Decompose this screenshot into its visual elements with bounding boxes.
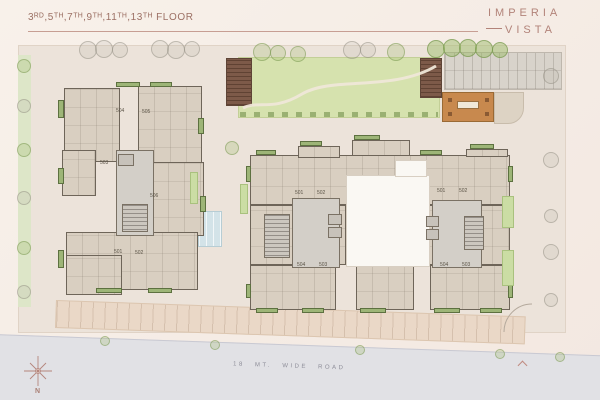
- tree-icon: [17, 241, 31, 255]
- tree-icon: [544, 293, 558, 307]
- tree-icon: [17, 59, 31, 73]
- balcony: [256, 308, 278, 313]
- tower-a-lift: [426, 216, 439, 227]
- tower-b-stairs: [264, 214, 290, 258]
- tree-icon: [225, 141, 239, 155]
- tree-icon: [543, 244, 559, 260]
- pergola-right: [420, 58, 442, 98]
- unit-number: 506: [150, 193, 158, 199]
- balcony: [58, 100, 64, 118]
- tree-icon: [17, 99, 31, 113]
- tree-icon: [492, 42, 508, 58]
- balcony: [480, 308, 502, 313]
- north-bump: [466, 149, 508, 157]
- hedge: [502, 250, 514, 286]
- tower-b-lift: [328, 227, 342, 238]
- deck-seat: [448, 112, 452, 116]
- balcony: [508, 166, 513, 182]
- mid-south-wing: [356, 265, 414, 310]
- unit-number: 504: [440, 262, 448, 268]
- amenity-deck: [442, 92, 494, 122]
- compass-north-label: N: [35, 388, 40, 395]
- balcony: [150, 82, 172, 87]
- tree-icon: [360, 42, 376, 58]
- tree-icon: [343, 41, 361, 59]
- north-bump: [352, 140, 410, 156]
- tree-icon: [543, 68, 559, 84]
- balcony: [96, 288, 122, 293]
- unit-number: 501: [114, 249, 122, 255]
- balcony: [58, 250, 64, 268]
- hedge: [190, 172, 198, 204]
- unit-number: 501: [437, 188, 445, 194]
- hedge-row: [240, 112, 438, 117]
- header-underline: [28, 31, 478, 32]
- tree-icon: [270, 45, 286, 61]
- road-label: 18 MT. WIDE ROAD: [233, 361, 345, 371]
- unit-number: 501: [295, 190, 303, 196]
- north-bump: [298, 146, 340, 158]
- tower-a-south-wing: [430, 265, 510, 310]
- unit-number: 503: [319, 262, 327, 268]
- tower-a-lift: [426, 229, 439, 240]
- tree-icon: [495, 349, 505, 359]
- balcony: [148, 288, 172, 293]
- unit-number: 504: [116, 108, 124, 114]
- balcony: [354, 135, 380, 140]
- tree-icon: [184, 41, 200, 57]
- hedge: [502, 196, 514, 228]
- brand-dash: [486, 28, 502, 29]
- balcony: [434, 308, 460, 313]
- deck-table: [457, 101, 479, 109]
- unit-number: 503: [462, 262, 470, 268]
- deck-seat: [448, 98, 452, 102]
- balcony: [198, 118, 204, 134]
- tree-icon: [543, 152, 559, 168]
- balcony: [302, 308, 324, 313]
- deck-seat: [485, 98, 489, 102]
- balcony: [508, 284, 513, 298]
- tree-icon: [17, 143, 31, 157]
- pergola-left: [226, 58, 252, 106]
- balcony: [58, 168, 64, 184]
- tree-icon: [387, 43, 405, 61]
- brand-logo-line1: IMPERIA: [488, 7, 561, 19]
- hedge: [240, 184, 248, 214]
- tree-icon: [17, 191, 31, 205]
- unit-number: 502: [135, 250, 143, 256]
- deck-seat: [485, 112, 489, 116]
- balcony: [246, 284, 251, 298]
- tree-icon: [95, 40, 113, 58]
- tree-icon: [544, 209, 558, 223]
- unit-number: 503: [100, 160, 108, 166]
- tree-icon: [17, 285, 31, 299]
- balcony: [300, 141, 322, 146]
- unit-number: 502: [459, 188, 467, 194]
- tree-icon: [555, 352, 565, 362]
- unit-number: 504: [297, 262, 305, 268]
- courtyard: [395, 160, 427, 177]
- floor-plan-page: 18 MT. WIDE ROAD C B A N: [0, 0, 600, 400]
- courtyard: [346, 175, 430, 267]
- tower-c-lift: [118, 154, 134, 166]
- balcony: [470, 144, 494, 149]
- balcony: [420, 150, 442, 155]
- brand-logo-line2: VISTA: [486, 20, 556, 38]
- tree-icon: [475, 40, 493, 58]
- unit-number: 502: [317, 190, 325, 196]
- balcony: [200, 196, 206, 212]
- unit-number: 505: [142, 109, 150, 115]
- tree-icon: [100, 336, 110, 346]
- balcony: [246, 166, 251, 182]
- tree-icon: [210, 340, 220, 350]
- balcony: [116, 82, 140, 87]
- tree-icon: [355, 345, 365, 355]
- tree-icon: [167, 41, 185, 59]
- balcony: [256, 150, 276, 155]
- page-title: 3ᴿᴰ,5ᵀᴴ,7ᵀᴴ,9ᵀᴴ,11ᵀᴴ,13ᵀᴴ FLOOR: [28, 12, 194, 23]
- tower-c-wing: [62, 150, 96, 196]
- tower-a-stairs: [464, 216, 484, 250]
- tree-icon: [112, 42, 128, 58]
- balcony: [360, 308, 386, 313]
- tower-b-south-wing: [250, 265, 336, 310]
- brand-logo-line2-text: VISTA: [505, 24, 556, 36]
- green-edge-strip: [18, 55, 31, 307]
- tower-b-lift: [328, 214, 342, 225]
- tree-icon: [253, 43, 271, 61]
- lawn: [238, 57, 440, 118]
- tower-c-stairs: [122, 204, 148, 232]
- tree-icon: [290, 46, 306, 62]
